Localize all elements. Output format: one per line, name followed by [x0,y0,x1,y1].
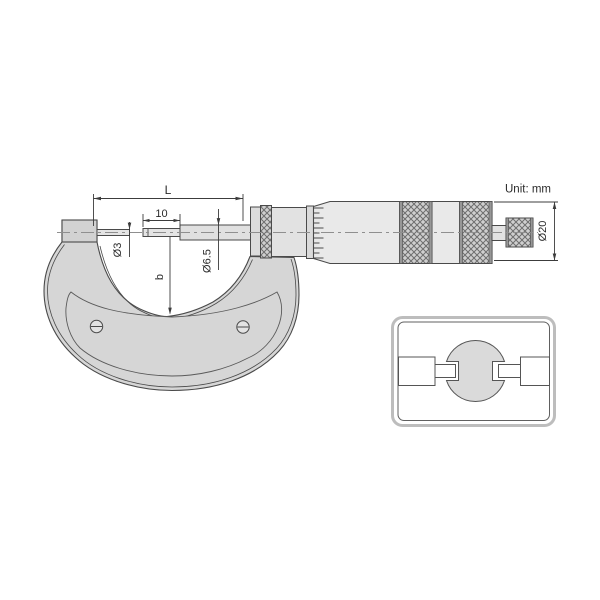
anvil-block [62,220,97,242]
frame-screw-right [237,321,249,333]
inset-detail-view [393,318,555,426]
spindle-rod [180,225,251,240]
dimension-b: b [154,237,172,315]
label-overall-length: L [165,183,172,197]
technical-drawing-page: L 10 Ø3 Ø6.5 b Ø20 Unit: mm [0,0,600,600]
inset-anvil-rod [435,365,456,378]
inset-anvil-block [399,357,436,386]
label-throat-depth: b [154,274,166,280]
lock-ring-knurled [261,206,272,259]
spindle-hub [251,207,261,256]
dimension-10: 10 [143,208,180,227]
label-spindle-diameter: Ø6.5 [202,249,214,273]
inset-spindle-block [521,357,550,386]
label-tip-length: 10 [155,208,167,220]
unit-note: Unit: mm [505,184,551,196]
measuring-jaws [62,220,251,242]
label-thimble-diameter: Ø20 [537,221,549,242]
label-anvil-tip-diameter: Ø3 [112,243,124,258]
dimension-L: L [94,183,244,226]
dimension-diameter-3: Ø3 [112,222,131,257]
frame-screw-left [90,320,102,332]
inset-spindle-rod [499,365,521,378]
dimension-diameter-6-5: Ø6.5 [202,209,221,273]
micrometer-diagram: L 10 Ø3 Ø6.5 b Ø20 Unit: mm [0,0,600,600]
